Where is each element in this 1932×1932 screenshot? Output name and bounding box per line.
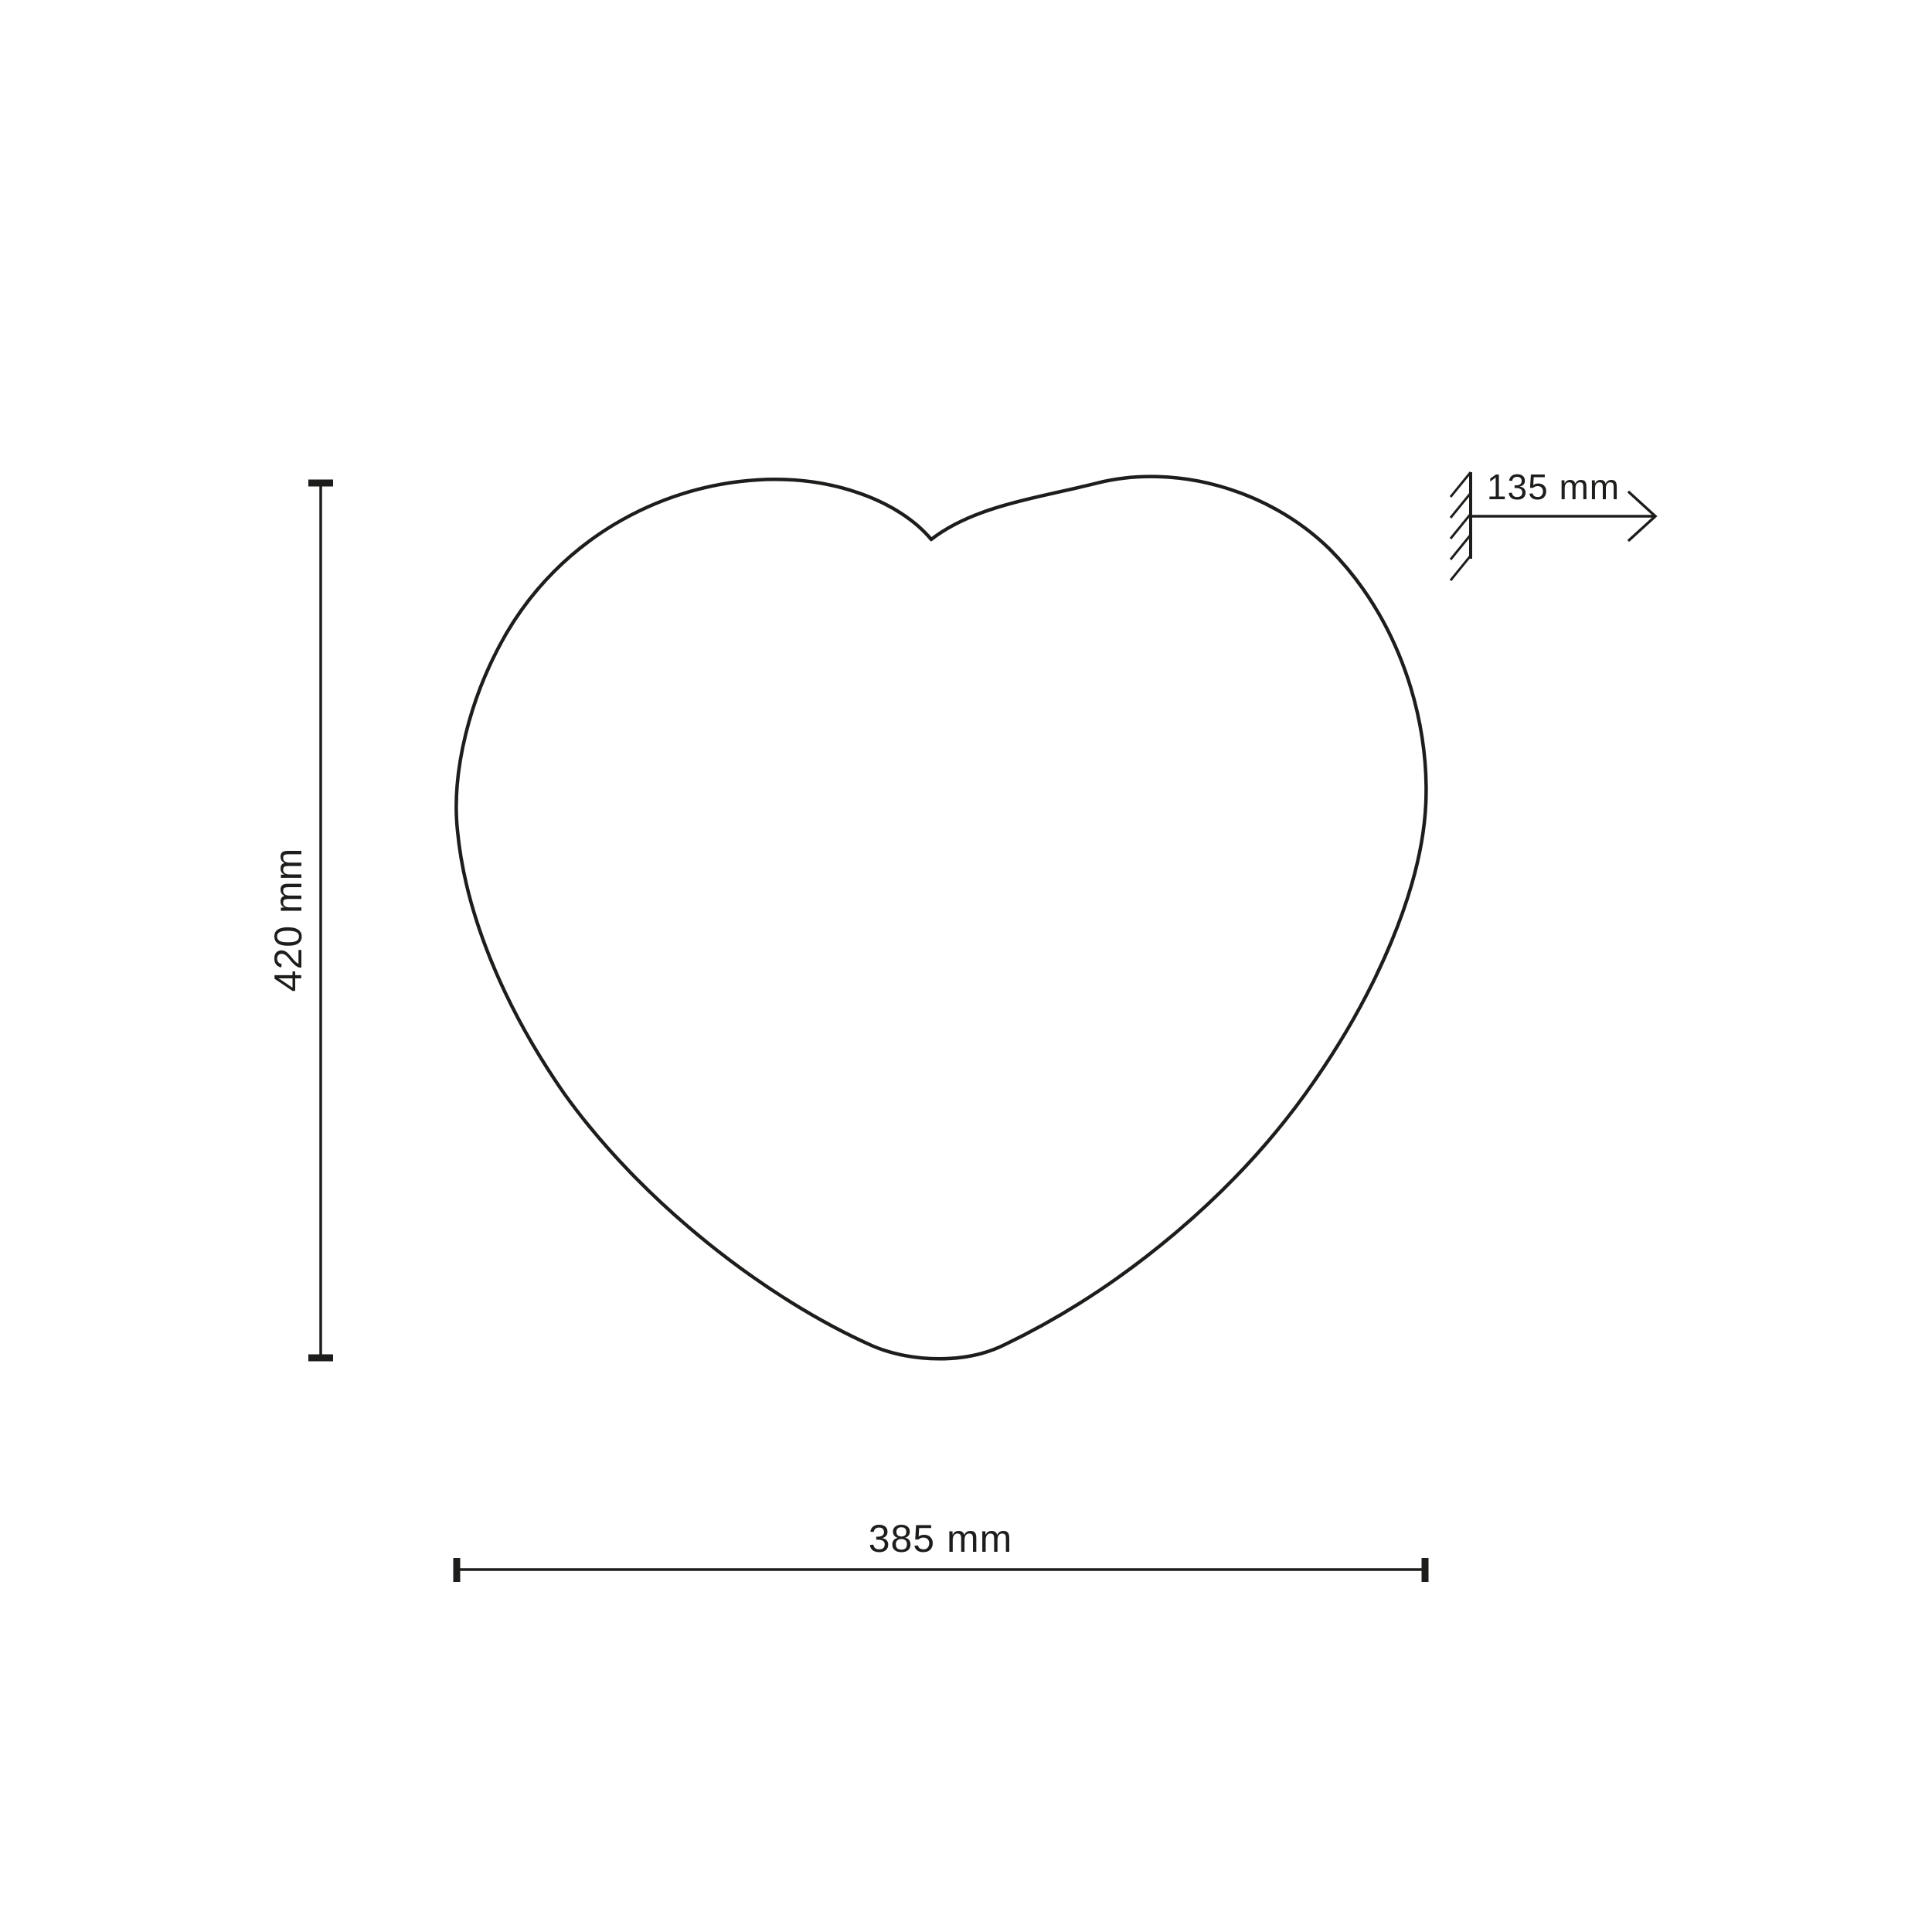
height-dimension-line (308, 483, 333, 1358)
width-dimension-label: 385 mm (869, 1516, 1013, 1561)
depth-dimension-label: 135 mm (1487, 466, 1620, 508)
heart-outline-shape (456, 477, 1426, 1359)
height-dimension-label: 420 mm (266, 848, 311, 992)
dimension-drawing: 420 mm 385 mm 135 mm (0, 0, 1932, 1932)
width-dimension-line (457, 1558, 1425, 1582)
wall-hatch-icon (1451, 472, 1471, 580)
